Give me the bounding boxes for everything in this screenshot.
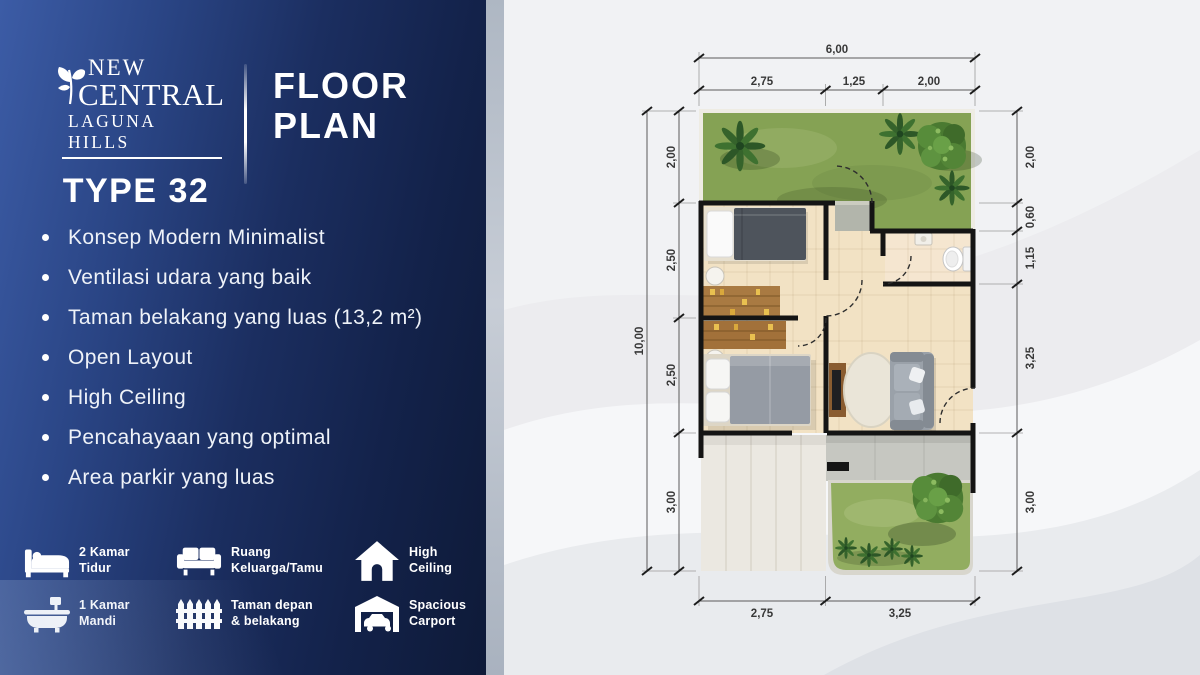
feature-text: Area parkir yang luas (68, 466, 275, 490)
sofa (890, 352, 934, 430)
amenity-label-line1: High (409, 545, 452, 561)
type-label: TYPE 32 (52, 172, 220, 211)
dim-label-top-3: 2,00 (918, 76, 940, 88)
feature-item: Open Layout (42, 346, 422, 369)
dim-label-right-1: 2,00 (1025, 146, 1037, 168)
dim-label-left-3: 2,50 (666, 364, 678, 386)
amenity-label: Ruang Keluarga/Tamu (231, 545, 323, 576)
dim-label-right-4: 3,25 (1025, 346, 1037, 369)
feature-text: Taman belakang yang luas (13,2 m²) (68, 306, 422, 330)
dim-label-right-5: 3,00 (1025, 491, 1037, 513)
carport-icon (354, 593, 400, 635)
terrace (826, 435, 973, 481)
amenity-label: Taman depan & belakang (231, 598, 313, 629)
carport (701, 435, 826, 571)
page-title: FLOOR PLAN (273, 66, 409, 147)
dim-label-left-overall: 10,00 (634, 327, 646, 356)
amenity-item: Ruang Keluarga/Tamu (176, 540, 354, 582)
dim-label-bottom-2: 3,25 (889, 608, 912, 620)
dim-label-left-1: 2,00 (666, 146, 678, 168)
bed-icon (24, 540, 70, 582)
brand-logo: NEW CENTRAL LAGUNA HILLS TYPE 32 (52, 56, 220, 211)
feature-text: Ventilasi udara yang baik (68, 266, 312, 290)
bullet-dot (42, 314, 49, 321)
bullet-dot (42, 234, 49, 241)
brand-row: NEW CENTRAL LAGUNA HILLS TYPE 32 FLOOR P… (52, 56, 409, 211)
vertical-divider (244, 64, 247, 184)
feature-item: High Ceiling (42, 386, 422, 409)
amenity-label-line1: Taman depan (231, 598, 313, 614)
amenity-label-line1: Ruang (231, 545, 323, 561)
divider-band (486, 0, 504, 675)
bullet-dot (42, 394, 49, 401)
amenity-label-line2: Keluarga/Tamu (231, 561, 323, 577)
amenity-label: 1 Kamar Mandi (79, 598, 130, 629)
amenity-label-line2: Ceiling (409, 561, 452, 577)
side-table (706, 267, 724, 285)
rug (844, 353, 898, 427)
amenity-item: Spacious Carport (354, 593, 486, 635)
flyer: NEW CENTRAL LAGUNA HILLS TYPE 32 FLOOR P… (0, 0, 1200, 675)
brand-name-line2: CENTRAL (78, 79, 220, 111)
fence-icon (176, 593, 222, 635)
page-title-line2: PLAN (273, 106, 409, 146)
dim-label-right-3: 1,15 (1025, 246, 1037, 269)
sofa-icon (176, 540, 222, 582)
entry-step (827, 462, 849, 471)
dim-label-right-2: 0,60 (1025, 206, 1037, 228)
house-icon (354, 540, 400, 582)
page-title-line1: FLOOR (273, 66, 409, 106)
feature-text: High Ceiling (68, 386, 186, 410)
dim-label-top-overall: 6,00 (826, 44, 848, 56)
amenity-label-line2: Mandi (79, 614, 130, 630)
feature-text: Pencahayaan yang optimal (68, 426, 331, 450)
dim-label-left-2: 2,50 (666, 249, 678, 271)
feature-item: Konsep Modern Minimalist (42, 226, 422, 249)
amenity-item: 2 Kamar Tidur (24, 540, 176, 582)
feature-item: Area parkir yang luas (42, 466, 422, 489)
amenity-item: 1 Kamar Mandi (24, 593, 176, 635)
amenity-label-line1: 1 Kamar (79, 598, 130, 614)
bullet-dot (42, 434, 49, 441)
brand-name-line1: NEW (88, 56, 220, 79)
bullet-dot (42, 274, 49, 281)
amenity-label: High Ceiling (409, 545, 452, 576)
amenity-item: High Ceiling (354, 540, 486, 582)
amenity-label: Spacious Carport (409, 598, 466, 629)
leaf-icon (54, 66, 88, 106)
amenity-label-line1: Spacious (409, 598, 466, 614)
brand-name-line3: LAGUNA HILLS (68, 111, 220, 153)
feature-list: Konsep Modern Minimalist Ventilasi udara… (42, 226, 422, 506)
bullet-dot (42, 354, 49, 361)
amenity-label-line2: & belakang (231, 614, 313, 630)
amenities-grid: 2 Kamar Tidur Ruang Keluarga/Tamu (24, 540, 486, 635)
dim-label-left-4: 3,00 (666, 491, 678, 513)
bullet-dot (42, 474, 49, 481)
feature-text: Open Layout (68, 346, 193, 370)
dim-label-top-1: 2,75 (751, 76, 774, 88)
bathtub-icon (24, 593, 70, 635)
feature-item: Pencahayaan yang optimal (42, 426, 422, 449)
amenity-label: 2 Kamar Tidur (79, 545, 130, 576)
amenity-label-line1: 2 Kamar (79, 545, 130, 561)
feature-item: Ventilasi udara yang baik (42, 266, 422, 289)
feature-text: Konsep Modern Minimalist (68, 226, 325, 250)
dim-label-top-2: 1,25 (843, 76, 866, 88)
feature-item: Taman belakang yang luas (13,2 m²) (42, 306, 422, 329)
amenity-label-line2: Tidur (79, 561, 130, 577)
amenity-label-line2: Carport (409, 614, 466, 630)
left-panel: NEW CENTRAL LAGUNA HILLS TYPE 32 FLOOR P… (0, 0, 486, 675)
floor-plan: 6,00 2,75 1,25 2,00 10,00 2,00 2,50 2,50… (622, 18, 1066, 658)
amenity-item: Taman depan & belakang (176, 593, 354, 635)
tv (832, 370, 841, 410)
dim-label-bottom-1: 2,75 (751, 608, 774, 620)
logo-rule (62, 157, 222, 159)
toilet (943, 247, 973, 271)
